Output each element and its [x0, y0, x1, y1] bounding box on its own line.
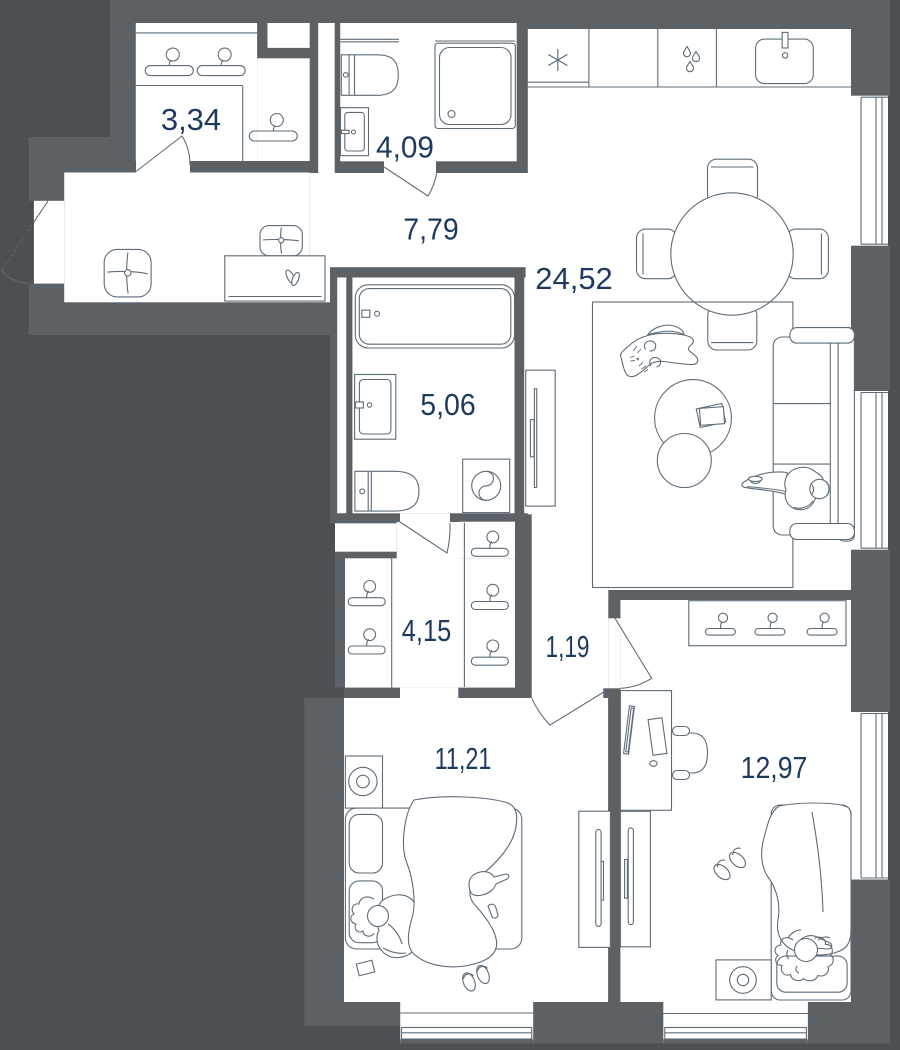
svg-text:11,21: 11,21 — [435, 741, 492, 776]
svg-text:3,34: 3,34 — [161, 102, 221, 137]
svg-text:12,97: 12,97 — [741, 751, 808, 785]
svg-text:4,09: 4,09 — [376, 130, 434, 165]
svg-text:4,15: 4,15 — [402, 614, 451, 649]
svg-text:5,06: 5,06 — [420, 388, 475, 422]
svg-text:24,52: 24,52 — [535, 261, 613, 296]
svg-text:1,19: 1,19 — [545, 628, 589, 663]
svg-text:7,79: 7,79 — [403, 213, 458, 247]
